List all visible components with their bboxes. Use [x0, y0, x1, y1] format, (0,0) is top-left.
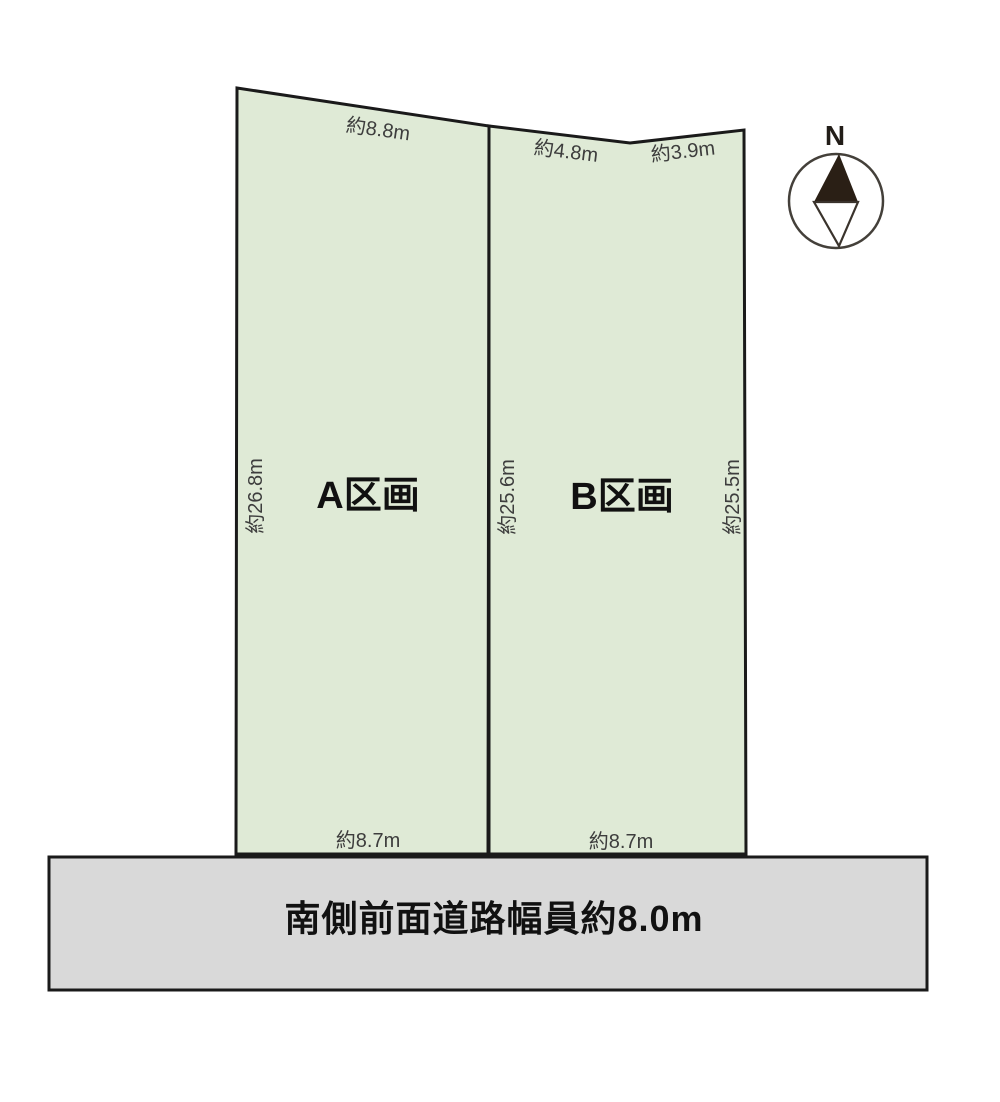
- parcel-a-left-dimension: 約26.8m: [246, 458, 266, 534]
- parcel-b-right-dimension: 約25.5m: [723, 459, 743, 535]
- parcel-b-bottom-dimension: 約8.7m: [589, 832, 653, 852]
- parcel-a-shape: [236, 88, 489, 854]
- road-label: 南側前面道路幅員約8.0m: [284, 901, 703, 937]
- parcel-b-left-dimension: 約25.6m: [498, 459, 518, 535]
- parcel-a-title: A区画: [316, 477, 419, 515]
- land-plot-diagram: 約8.8m 約4.8m 約3.9m 約26.8m 約25.6m 約25.5m 約…: [0, 0, 1000, 1102]
- compass-north-label: N: [825, 122, 845, 150]
- parcel-b-title: B区画: [570, 478, 673, 516]
- parcel-a-bottom-dimension: 約8.7m: [336, 831, 400, 851]
